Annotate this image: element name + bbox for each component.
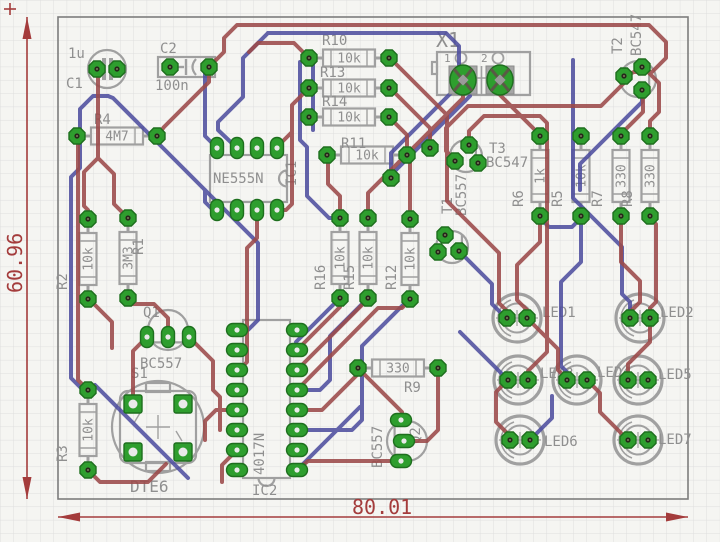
- dimension-height-label: 60.96: [3, 233, 27, 293]
- component-label: IC2: [252, 483, 277, 499]
- component-label: 10k: [404, 247, 419, 271]
- pcb-editor-canvas: 4M710k10k10k10k33010k3M310k10k10k10k1k10…: [0, 0, 720, 542]
- component-label: 4017N: [252, 433, 268, 475]
- component-label: 4M7: [105, 130, 128, 145]
- component-label: R15: [342, 265, 358, 290]
- component-label: R3: [55, 445, 71, 462]
- component-label: T2: [610, 37, 626, 54]
- component-label: R5: [550, 190, 566, 207]
- component-label: NE555N: [213, 171, 264, 187]
- component-label: 100n: [155, 78, 189, 94]
- pcb-board-view: 4M710k10k10k10k33010k3M310k10k10k10k1k10…: [0, 0, 720, 542]
- component-label: R7: [590, 190, 606, 207]
- dimension-width-label: 80.01: [352, 495, 412, 519]
- component-label: LED6: [544, 434, 578, 450]
- component-label: R14: [322, 94, 347, 110]
- component-label: 10k: [337, 111, 361, 126]
- component-label: 10k: [82, 418, 97, 442]
- component-label: R6: [511, 190, 527, 207]
- component-label: R10: [322, 33, 347, 49]
- component-label: 330: [615, 164, 630, 187]
- component-label: R11: [341, 136, 366, 152]
- component-label: R8: [620, 190, 636, 207]
- component-label: R12: [384, 265, 400, 290]
- component-label: 330: [644, 164, 659, 187]
- component-label: 1u: [68, 46, 85, 62]
- component-label: 1: [444, 52, 451, 65]
- component-label: BC547: [629, 14, 645, 56]
- component-label: R13: [320, 65, 345, 81]
- component-label: BC547: [486, 155, 528, 171]
- component-label: LED2: [660, 305, 694, 321]
- component-label: 10k: [82, 247, 97, 271]
- component-label: 10k: [362, 246, 377, 270]
- component-label: R9: [404, 380, 421, 396]
- component-label: LED5: [658, 367, 692, 383]
- component-label: C1: [66, 76, 83, 92]
- component-label: LED7: [658, 432, 692, 448]
- component-label: R2: [55, 273, 71, 290]
- component-label: 2: [481, 52, 488, 65]
- component-label: R1: [131, 238, 147, 255]
- component-label: R16: [313, 265, 329, 290]
- component-label: 330: [386, 362, 409, 377]
- component-label: C2: [160, 41, 177, 57]
